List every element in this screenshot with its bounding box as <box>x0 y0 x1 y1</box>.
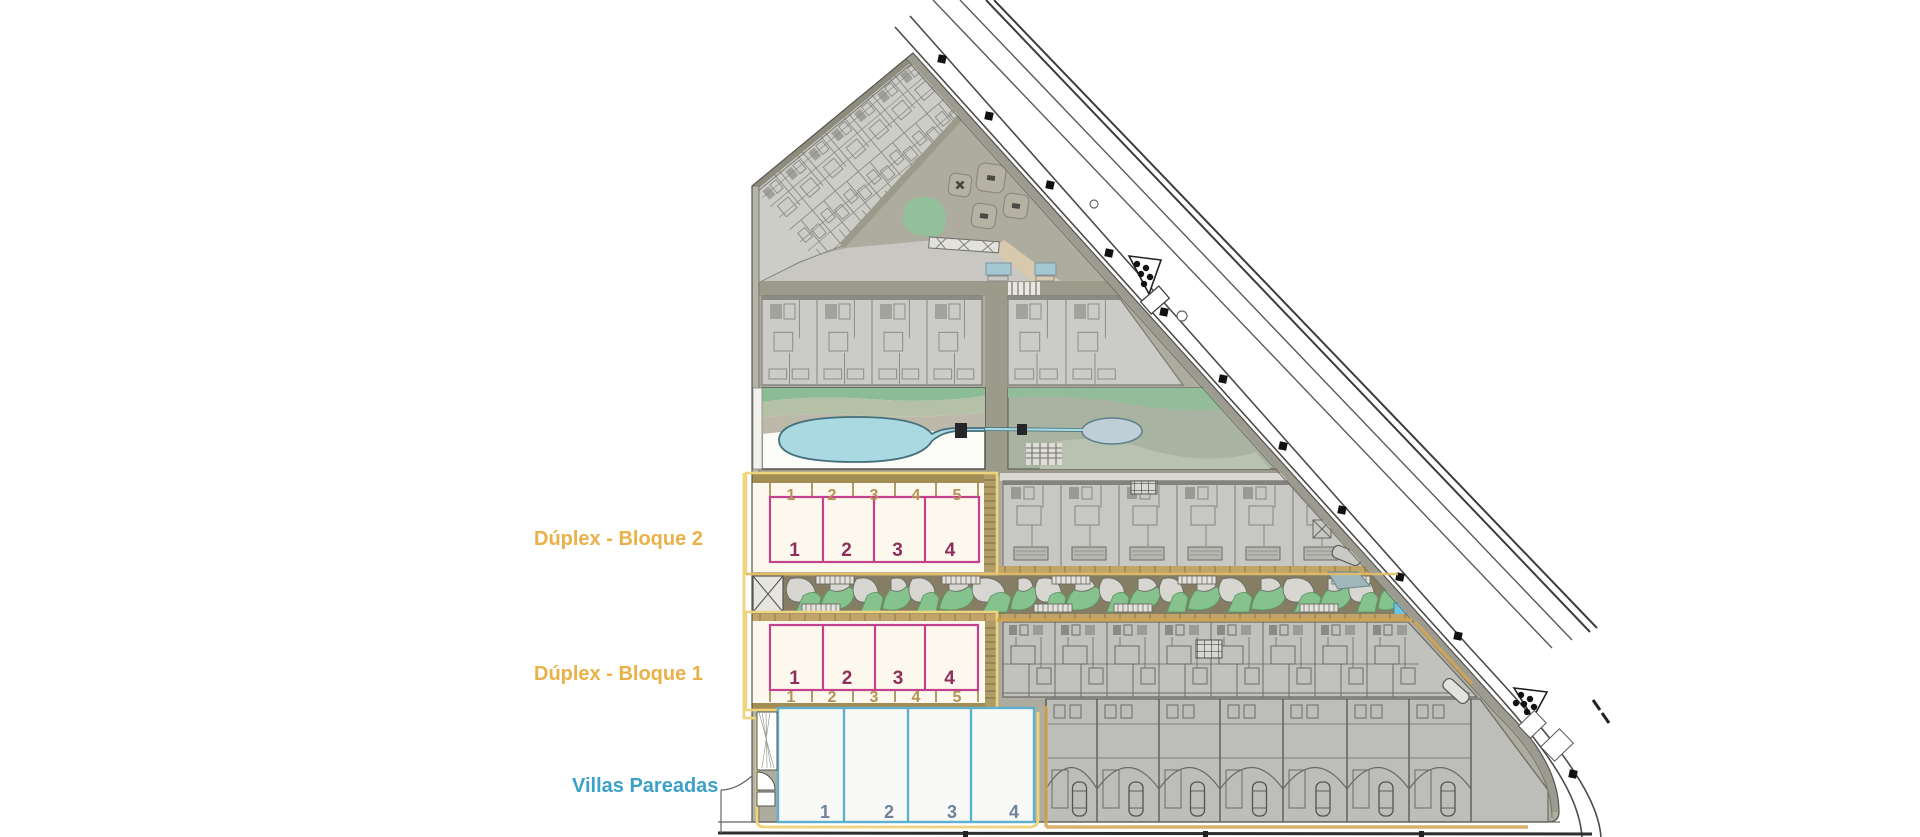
svg-text:3: 3 <box>870 689 879 706</box>
svg-text:2: 2 <box>884 802 894 822</box>
svg-text:1: 1 <box>787 689 796 706</box>
svg-text:4: 4 <box>912 487 921 504</box>
svg-text:Villas Pareadas: Villas Pareadas <box>572 775 718 797</box>
svg-text:4: 4 <box>1009 802 1019 822</box>
svg-text:1: 1 <box>820 802 830 822</box>
svg-text:1: 1 <box>787 487 796 504</box>
svg-text:5: 5 <box>953 487 962 504</box>
svg-text:2: 2 <box>841 540 852 561</box>
svg-text:2: 2 <box>828 487 837 504</box>
svg-text:4: 4 <box>912 689 921 706</box>
svg-text:1: 1 <box>789 668 800 689</box>
svg-text:3: 3 <box>870 487 879 504</box>
svg-text:Dúplex - Bloque 1: Dúplex - Bloque 1 <box>534 663 703 685</box>
svg-text:3: 3 <box>892 540 903 561</box>
svg-text:2: 2 <box>828 689 837 706</box>
svg-text:Dúplex - Bloque 2: Dúplex - Bloque 2 <box>534 528 703 550</box>
svg-text:1: 1 <box>789 540 800 561</box>
svg-text:3: 3 <box>947 802 957 822</box>
svg-text:4: 4 <box>945 540 956 561</box>
svg-text:4: 4 <box>944 668 955 689</box>
svg-text:5: 5 <box>953 689 962 706</box>
svg-text:3: 3 <box>893 668 904 689</box>
svg-text:2: 2 <box>842 668 853 689</box>
